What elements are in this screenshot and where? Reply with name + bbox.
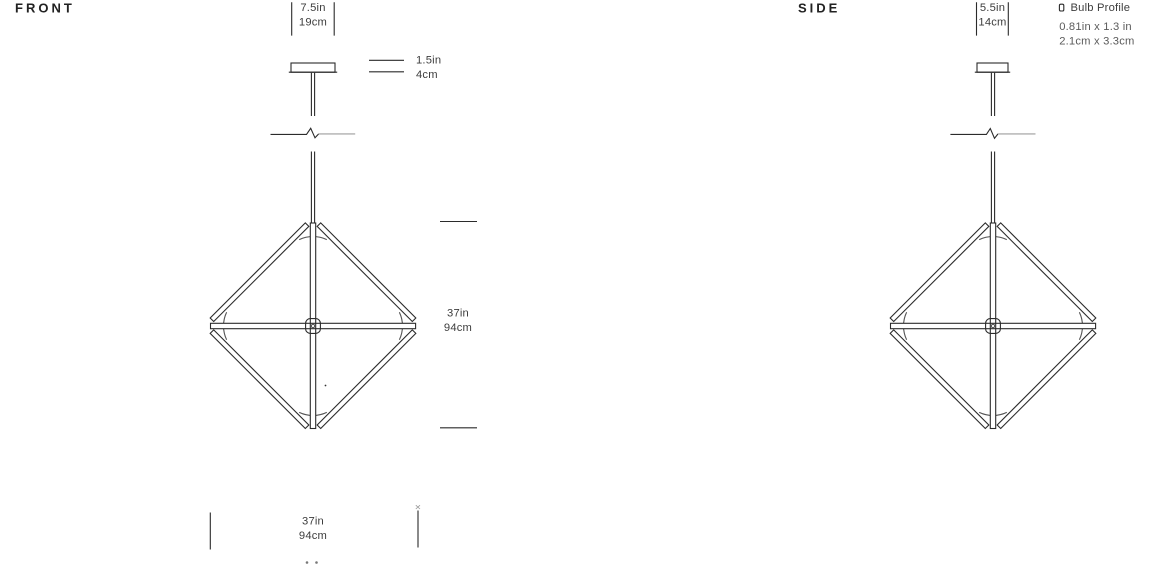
svg-text:FRONT: FRONT	[15, 1, 75, 16]
svg-text:4cm: 4cm	[416, 69, 438, 81]
svg-text:94cm: 94cm	[444, 322, 472, 334]
svg-text:2.1cm x 3.3cm: 2.1cm x 3.3cm	[1059, 36, 1134, 48]
svg-text:1.5in: 1.5in	[416, 55, 441, 67]
svg-text:19cm: 19cm	[299, 16, 327, 28]
svg-text:5.5in: 5.5in	[980, 2, 1005, 14]
svg-text:SIDE: SIDE	[798, 1, 840, 16]
svg-text:Bulb Profile: Bulb Profile	[1071, 2, 1131, 14]
svg-text:7.5in: 7.5in	[300, 2, 325, 14]
svg-text:37in: 37in	[302, 516, 324, 528]
svg-text:14cm: 14cm	[978, 16, 1006, 28]
svg-text:37in: 37in	[447, 308, 469, 320]
svg-text:94cm: 94cm	[299, 530, 327, 542]
svg-text:0.81in x 1.3 in: 0.81in x 1.3 in	[1059, 21, 1132, 33]
